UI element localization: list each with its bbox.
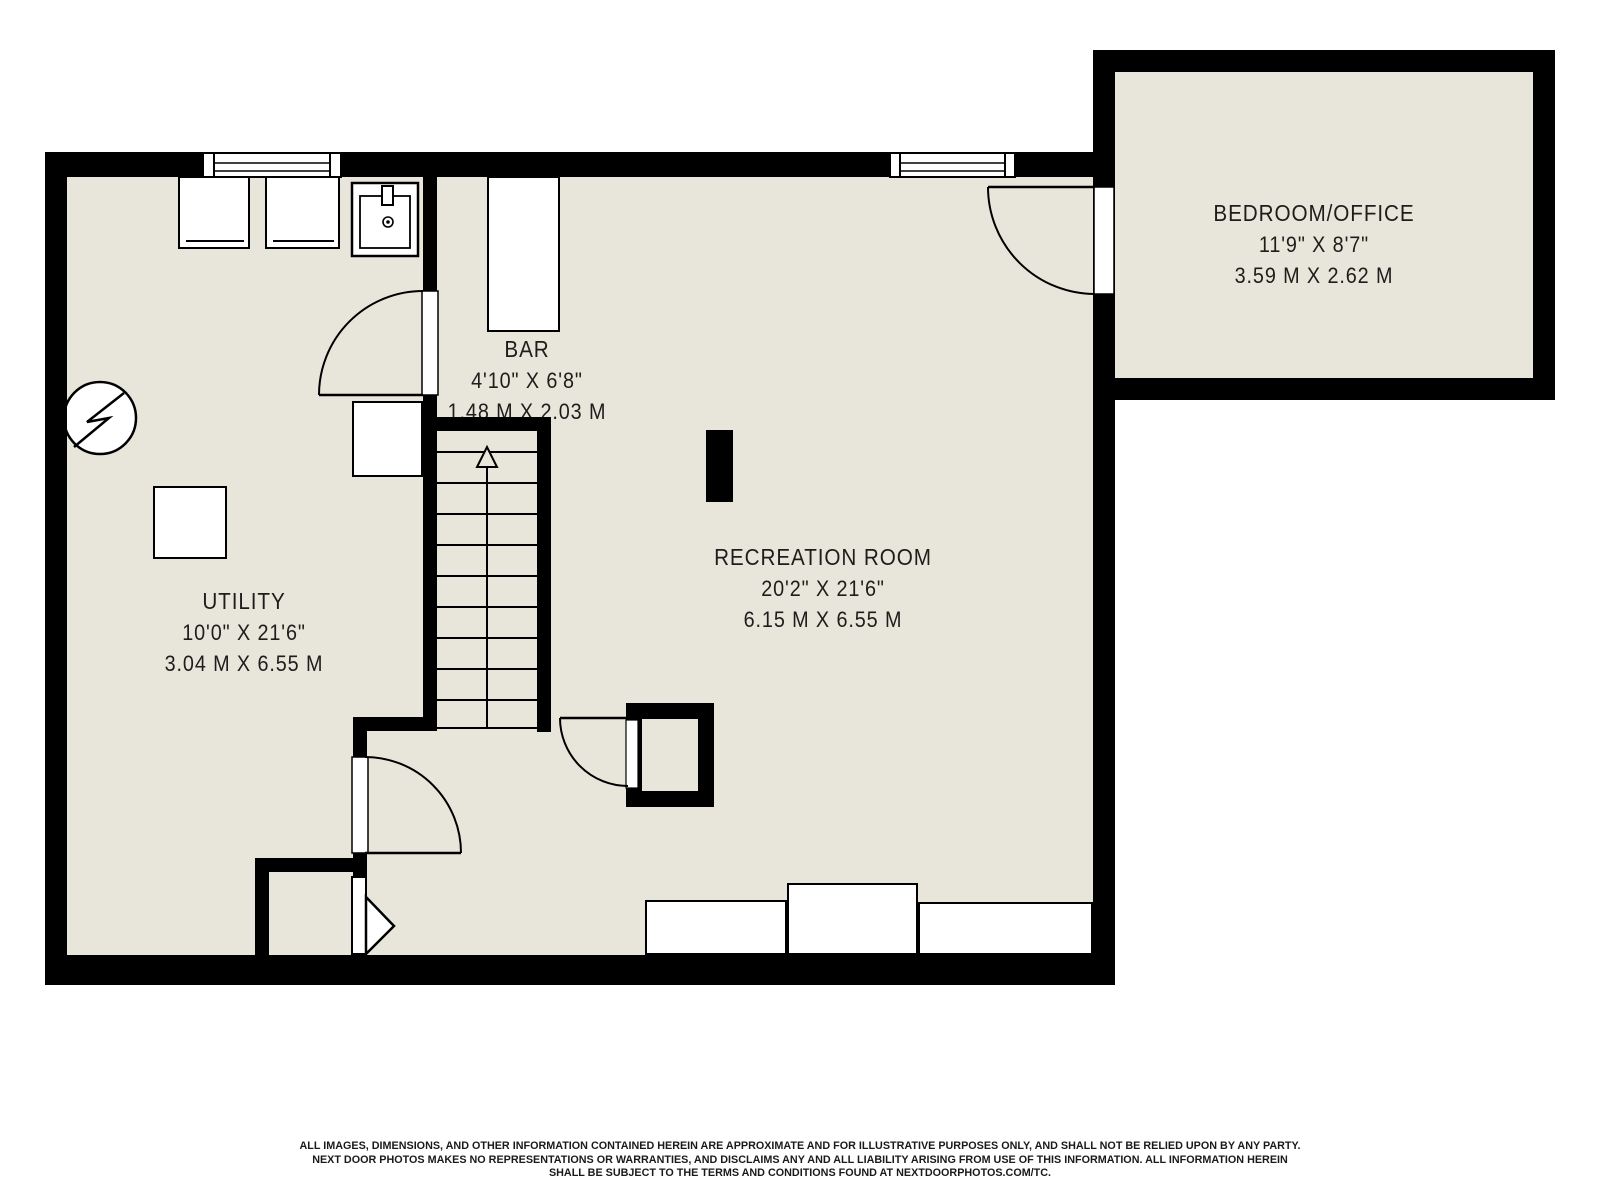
- wall-main-top: [45, 152, 1115, 177]
- room-dim-imperial: 10'0" X 21'6": [109, 617, 379, 648]
- room-dim-imperial: 20'2" X 21'6": [643, 573, 1003, 604]
- room-dim-metric: 6.15 M X 6.55 M: [643, 604, 1003, 635]
- room-label-utility: UTILITY 10'0" X 21'6" 3.04 M X 6.55 M: [109, 586, 379, 679]
- washer-door-line: [186, 240, 244, 242]
- disclaimer-line: ALL IMAGES, DIMENSIONS, AND OTHER INFORM…: [16, 1140, 1584, 1154]
- sofa-section-right: [918, 902, 1093, 955]
- wall-bedroom-left: [1093, 50, 1115, 400]
- room-name: BEDROOM/OFFICE: [1134, 198, 1494, 229]
- wall-bedroom-bottom: [1093, 378, 1555, 400]
- room-dim-imperial: 11'9" X 8'7": [1134, 229, 1494, 260]
- support-post-icon: [706, 430, 733, 502]
- wall-main-left: [45, 152, 67, 985]
- room-label-bedroom-office: BEDROOM/OFFICE 11'9" X 8'7" 3.59 M X 2.6…: [1134, 198, 1494, 291]
- wall-nook-horiz: [255, 858, 365, 872]
- wall-bedroom-right: [1533, 50, 1555, 400]
- disclaimer: ALL IMAGES, DIMENSIONS, AND OTHER INFORM…: [16, 1140, 1584, 1181]
- room-name: RECREATION ROOM: [643, 542, 1003, 573]
- wall-utility-divider: [423, 152, 437, 730]
- bar-counter: [487, 176, 560, 332]
- dryer-door-line: [273, 240, 334, 242]
- wall-bedroom-top: [1093, 50, 1555, 72]
- washer-icon: [178, 176, 250, 249]
- wall-stair-right: [537, 417, 551, 732]
- dryer-icon: [265, 176, 340, 249]
- floor-plan: UTILITY 10'0" X 21'6" 3.04 M X 6.55 M BA…: [0, 0, 1600, 1200]
- room-dim-metric: 3.04 M X 6.55 M: [109, 648, 379, 679]
- room-dim-metric: 3.59 M X 2.62 M: [1134, 260, 1494, 291]
- disclaimer-line: NEXT DOOR PHOTOS MAKES NO REPRESENTATION…: [16, 1154, 1584, 1168]
- sofa-section-left: [645, 900, 787, 955]
- wall-main-bottom: [45, 955, 1115, 985]
- utility-freezer: [153, 486, 227, 559]
- wall-stair-top: [423, 417, 551, 431]
- sofa-section-middle: [787, 883, 918, 955]
- furnace-unit: [640, 717, 700, 793]
- room-name: UTILITY: [109, 586, 379, 617]
- wall-nook-vert: [255, 858, 269, 958]
- wall-under-stair-vert: [353, 717, 367, 877]
- room-label-recreation: RECREATION ROOM 20'2" X 21'6" 6.15 M X 6…: [643, 542, 1003, 635]
- disclaimer-line: SHALL BE SUBJECT TO THE TERMS AND CONDIT…: [16, 1167, 1584, 1181]
